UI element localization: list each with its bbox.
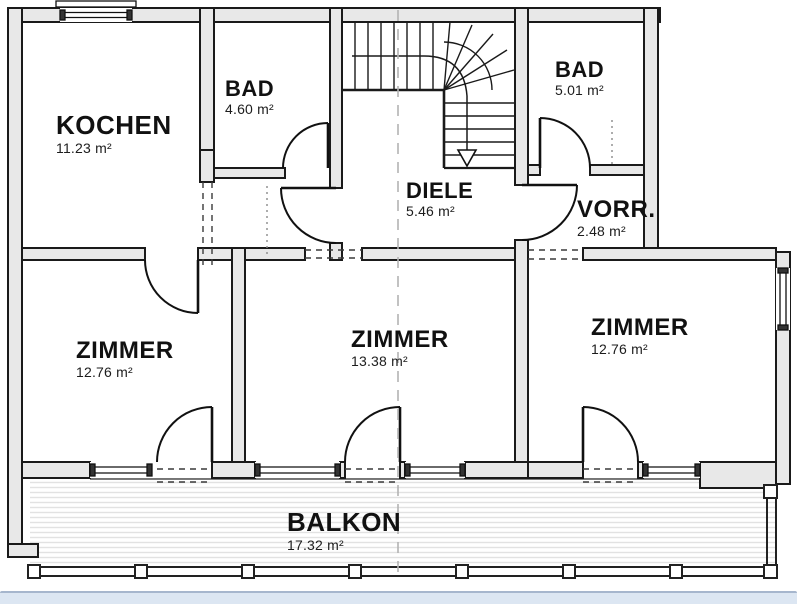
balcony-floor [30,478,776,566]
floorplan-page: KOCHEN 11.23 m² BAD 4.60 m² BAD 5.01 m² … [0,0,797,604]
stair-direction-arrow [458,150,476,166]
bottom-scrollbar-track[interactable] [0,591,797,604]
staircase [342,22,515,168]
windows [56,1,790,478]
floorplan-drawing [0,0,797,604]
